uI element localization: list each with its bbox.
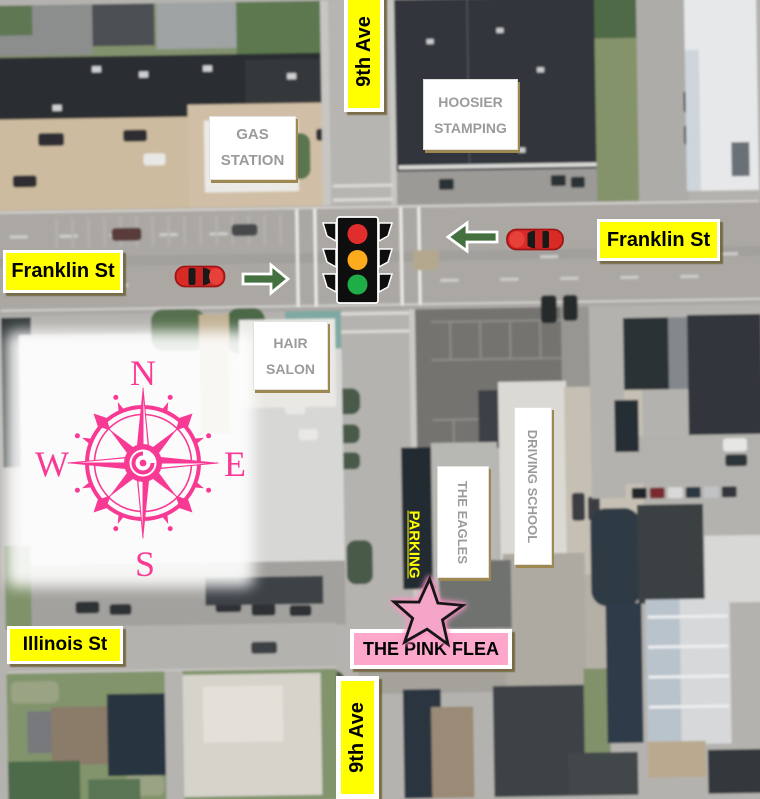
svg-text:S: S xyxy=(135,544,155,583)
svg-text:E: E xyxy=(224,444,246,484)
svg-text:N: N xyxy=(130,353,156,393)
svg-text:W: W xyxy=(35,444,69,484)
